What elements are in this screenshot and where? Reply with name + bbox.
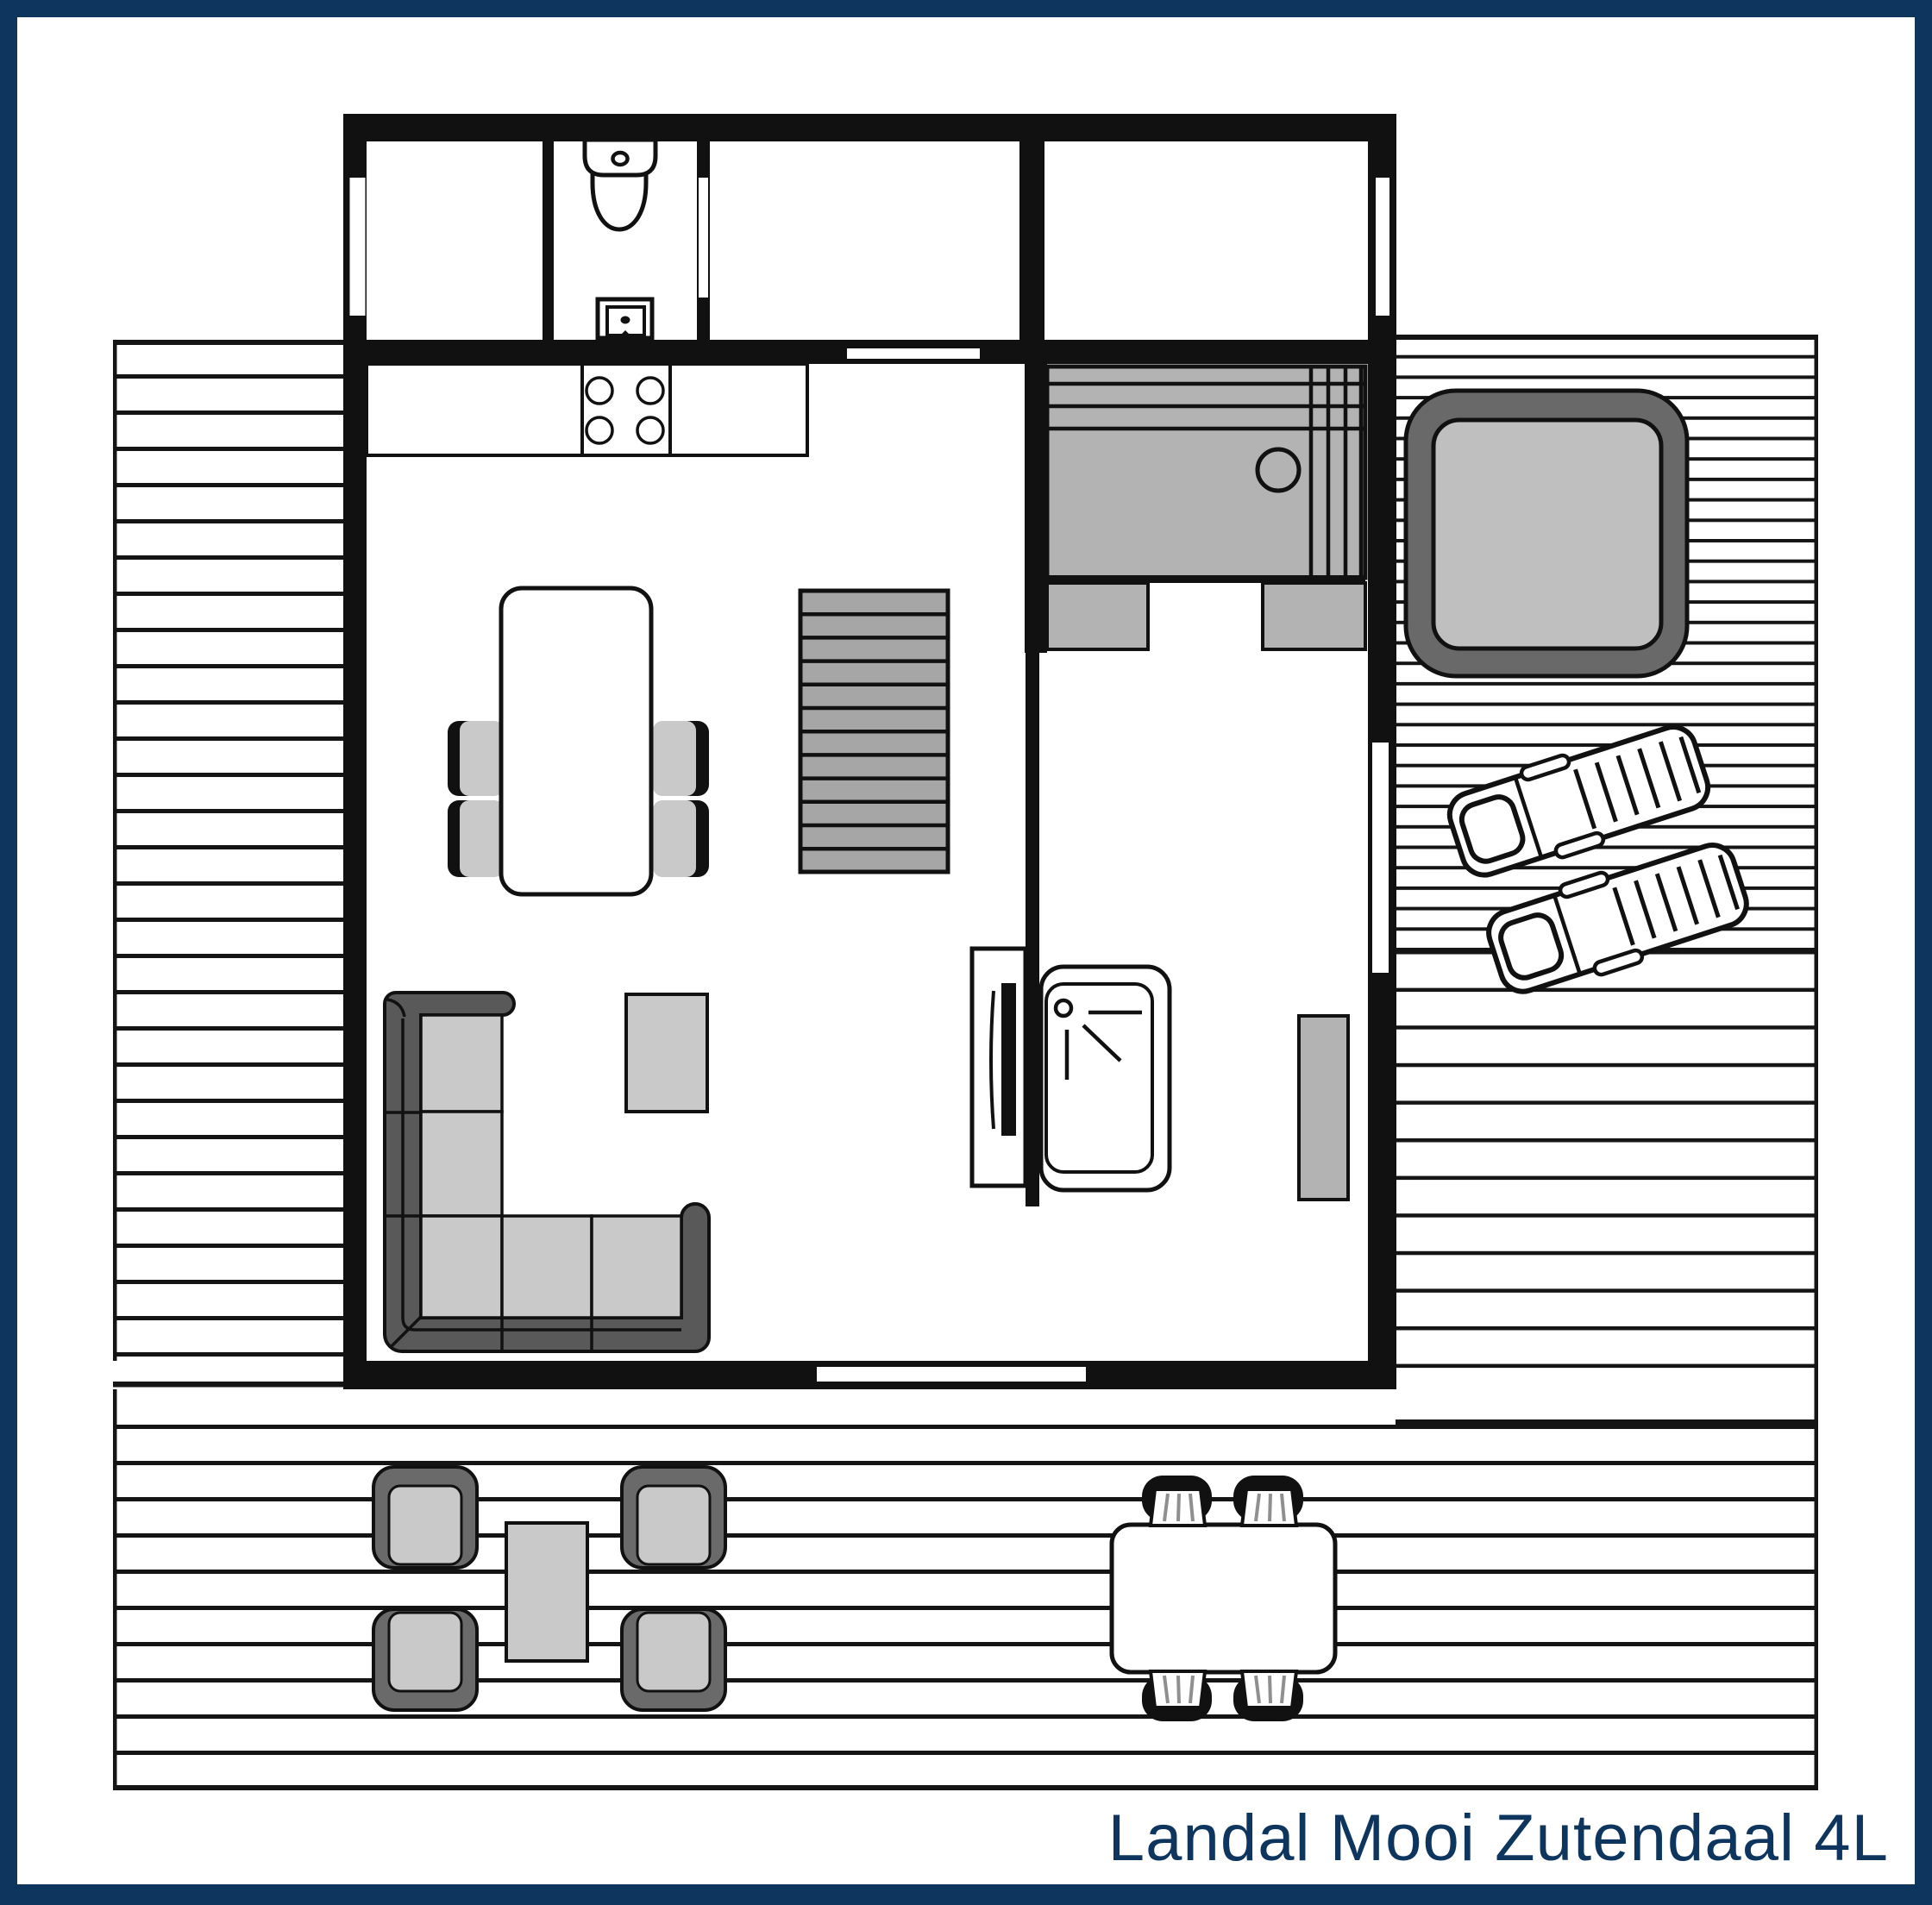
svg-text:Landal Mooi Zutendaal 4L: Landal Mooi Zutendaal 4L xyxy=(1108,1802,1889,1875)
